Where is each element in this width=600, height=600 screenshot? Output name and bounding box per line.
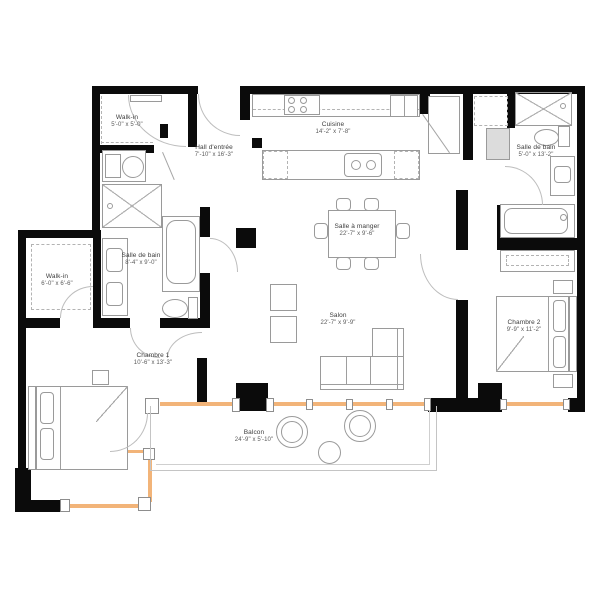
wall-salon-chambre2 xyxy=(456,300,468,398)
floor-plan: Walk-in 5'-0" x 5'-0" Hall d'entrée 7'-1… xyxy=(0,0,600,600)
closet-shelf-dashed xyxy=(474,96,508,126)
walkin1-shelf-dashed xyxy=(101,142,153,143)
room-dims: 6'-0" x 6'-6" xyxy=(41,281,73,289)
room-label-salon: Salon 22'-7" x 9'-9" xyxy=(321,312,356,328)
bath2-door-arc xyxy=(505,166,543,205)
wall-hall-west-a xyxy=(200,207,210,237)
room-name: Hall d'entrée xyxy=(195,144,233,152)
dining-chair xyxy=(336,257,351,270)
balcony-chair-cushion xyxy=(281,421,303,443)
room-label-chambre1: Chambre 1 10'-6" x 13'-3" xyxy=(134,352,172,368)
room-dims: 24'-9" x 5'-10" xyxy=(235,437,273,445)
window-chambre2-south xyxy=(504,402,568,406)
dining-chair xyxy=(364,198,379,211)
bed2-pillow xyxy=(553,336,566,368)
room-dims: 7'-10" x 16'-3" xyxy=(195,152,233,160)
room-dims: 8'-4" x 9'-0" xyxy=(122,260,161,268)
wall-south-post-up xyxy=(478,383,502,398)
wall-bath2-south xyxy=(497,238,577,250)
chambre2-door-arc xyxy=(420,254,458,300)
room-name: Walk-in xyxy=(41,273,73,281)
vanity-sink xyxy=(106,248,123,272)
wall-step xyxy=(18,230,100,238)
stove-burner xyxy=(300,106,307,113)
wall-bath1-row-c xyxy=(160,318,210,328)
sofa-seam xyxy=(346,357,347,385)
room-label-bain1: Salle de bain 8'-4" x 9'-0" xyxy=(122,252,161,268)
sink-bowl xyxy=(351,160,361,170)
bed2-pillow xyxy=(553,300,566,332)
washer-door xyxy=(122,156,144,178)
room-dims: 9'-9" x 11'-2" xyxy=(507,327,542,335)
stove-burner xyxy=(300,97,307,104)
room-dims: 22'-7" x 9'-9" xyxy=(321,320,356,328)
room-dims: 5'-0" x 5'-0" xyxy=(111,122,143,130)
fridge-door-line xyxy=(404,96,405,116)
bed2-blanket-line xyxy=(548,297,549,371)
vanity-2-sink xyxy=(554,166,571,183)
balcony-table xyxy=(318,441,341,464)
shower-head xyxy=(107,203,113,209)
island-sink xyxy=(344,153,382,177)
balcony-inner-line xyxy=(429,410,430,465)
room-name: Chambre 1 xyxy=(134,352,172,360)
wall-south-mid xyxy=(428,398,502,412)
balcony-door-arc xyxy=(110,413,148,452)
wall-top-left xyxy=(92,86,198,94)
bath1-door-arc xyxy=(210,238,238,272)
balcony-chair-cushion xyxy=(349,415,371,437)
bathtub-2-basin xyxy=(504,208,568,234)
room-label-chambre2: Chambre 2 9'-9" x 11'-2" xyxy=(507,319,542,335)
shower-2 xyxy=(515,92,572,126)
window-post xyxy=(138,497,151,511)
island-dashed-end xyxy=(263,151,288,179)
sofa-back-line xyxy=(397,329,398,389)
stove-burner xyxy=(288,97,295,104)
room-dims: 22'-7" x 9'-6" xyxy=(334,231,379,239)
bed1-pillow xyxy=(40,392,54,424)
room-dims: 5'-0" x 13'-2" xyxy=(517,152,556,160)
room-label-balcon: Balcon 24'-9" x 5'-10" xyxy=(235,429,273,445)
walkin1-shelf-dashed xyxy=(101,96,102,144)
window-chambre1-south xyxy=(68,504,142,508)
dining-chair xyxy=(314,223,328,239)
wall-se-corner xyxy=(568,398,585,412)
nightstand xyxy=(92,370,109,385)
wall-chambre1-stub xyxy=(197,358,207,402)
room-name: Chambre 2 xyxy=(507,319,542,327)
room-label-hall: Hall d'entrée 7'-10" x 16'-3" xyxy=(195,144,233,160)
wall-walkin1-right xyxy=(188,94,197,147)
room-name: Walk-in xyxy=(111,114,143,122)
vanity-sink xyxy=(106,282,123,306)
sofa-back-line xyxy=(321,384,403,385)
window-post xyxy=(500,399,507,410)
toilet-2-tank xyxy=(558,126,570,147)
dining-chair xyxy=(364,257,379,270)
bed1-headboard xyxy=(28,386,36,470)
room-name: Salle à manger xyxy=(334,223,379,231)
column-hall xyxy=(236,228,256,248)
room-name: Cuisine xyxy=(316,121,351,129)
wall-entry-post xyxy=(240,94,250,120)
window-post xyxy=(60,499,70,512)
room-label-bain2: Salle de bain 5'-0" x 13'-2" xyxy=(517,144,556,160)
stove-burner xyxy=(288,106,295,113)
wall-corridor-2 xyxy=(456,190,468,250)
sink-bowl xyxy=(366,160,376,170)
pouf xyxy=(270,316,297,343)
room-label-walkin2: Walk-in 6'-0" x 6'-6" xyxy=(41,273,73,289)
bed1-pillow xyxy=(40,428,54,460)
wall-bath1-row-a xyxy=(26,318,60,328)
chambre1-door-arc xyxy=(167,332,202,358)
wall-left-lower xyxy=(18,238,26,468)
dining-chair xyxy=(336,198,351,211)
wardrobe-rod-dashed xyxy=(506,255,569,266)
sofa-seam xyxy=(370,357,371,385)
window-post xyxy=(563,399,570,410)
nightstand xyxy=(553,280,573,294)
room-label-cuisine: Cuisine 14'-2" x 7'-8" xyxy=(316,121,351,137)
room-name: Salle de bain xyxy=(122,252,161,260)
pouf xyxy=(270,284,297,311)
bathtub-1-basin xyxy=(166,220,196,284)
wall-walkin2-right xyxy=(93,230,101,322)
toilet-1-tank xyxy=(188,297,198,319)
shower-head xyxy=(560,103,566,109)
room-dims: 14'-2" x 7'-8" xyxy=(316,129,351,137)
utility-cabinet xyxy=(486,128,510,160)
wall-bath2-west-post xyxy=(507,94,515,128)
room-dims: 10'-6" x 13'-3" xyxy=(134,360,172,368)
bed2-fold xyxy=(496,336,524,372)
bed1-blanket-line xyxy=(60,387,61,469)
entry-door-arc xyxy=(198,94,240,136)
room-label-manger: Salle à manger 22'-7" x 9'-6" xyxy=(334,223,379,239)
bed2-headboard xyxy=(569,296,577,372)
toilet-1-bowl xyxy=(162,299,188,318)
laundry-door-leaf xyxy=(162,152,175,180)
room-name: Salle de bain xyxy=(517,144,556,152)
tub-faucet xyxy=(560,214,567,221)
wall-right xyxy=(577,94,585,412)
wall-entry-post-2 xyxy=(252,138,262,148)
wall-hall-west-b xyxy=(200,273,210,322)
wall-left-upper xyxy=(92,94,100,236)
nightstand xyxy=(553,374,573,388)
washer-panel xyxy=(105,154,121,178)
balcony-inner-line xyxy=(156,464,430,465)
island-dashed-end xyxy=(394,151,419,179)
dining-chair xyxy=(396,223,410,239)
room-name: Balcon xyxy=(235,429,273,437)
wall-corridor-1 xyxy=(463,94,473,160)
room-name: Salon xyxy=(321,312,356,320)
room-label-walkin1: Walk-in 5'-0" x 5'-0" xyxy=(111,114,143,130)
